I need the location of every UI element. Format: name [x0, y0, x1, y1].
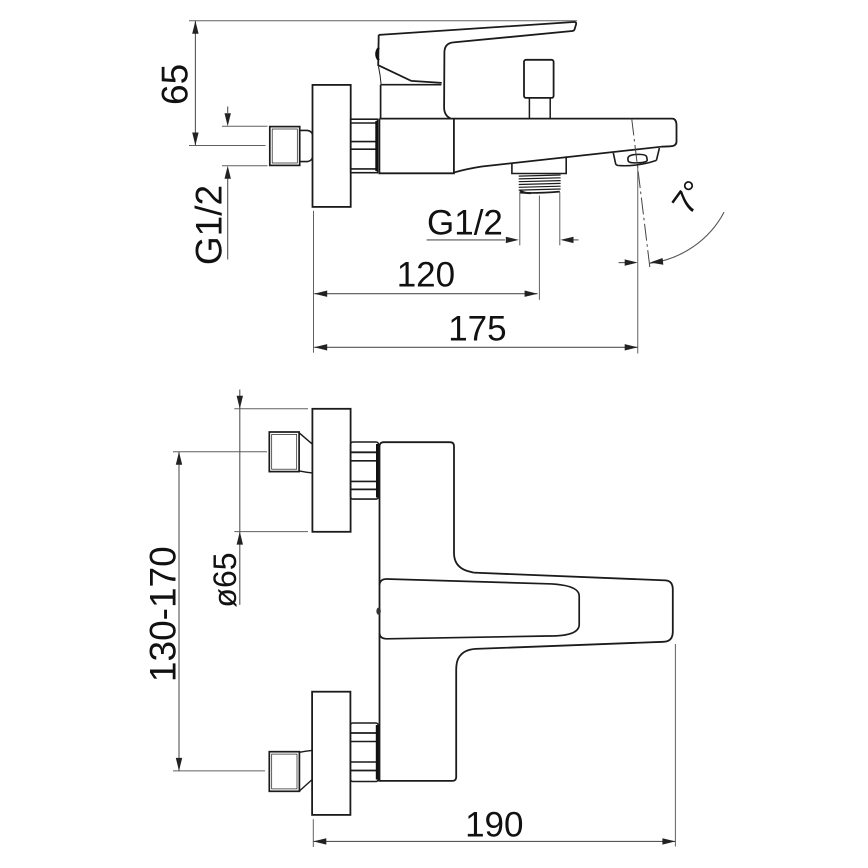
svg-text:175: 175: [448, 310, 506, 349]
svg-text:ø65: ø65: [207, 552, 243, 607]
svg-text:G1/2: G1/2: [189, 185, 230, 265]
svg-text:130-170: 130-170: [143, 546, 184, 682]
svg-text:65: 65: [155, 64, 196, 105]
svg-text:120: 120: [397, 256, 455, 295]
svg-text:G1/2: G1/2: [427, 204, 503, 243]
svg-text:190: 190: [465, 806, 523, 845]
